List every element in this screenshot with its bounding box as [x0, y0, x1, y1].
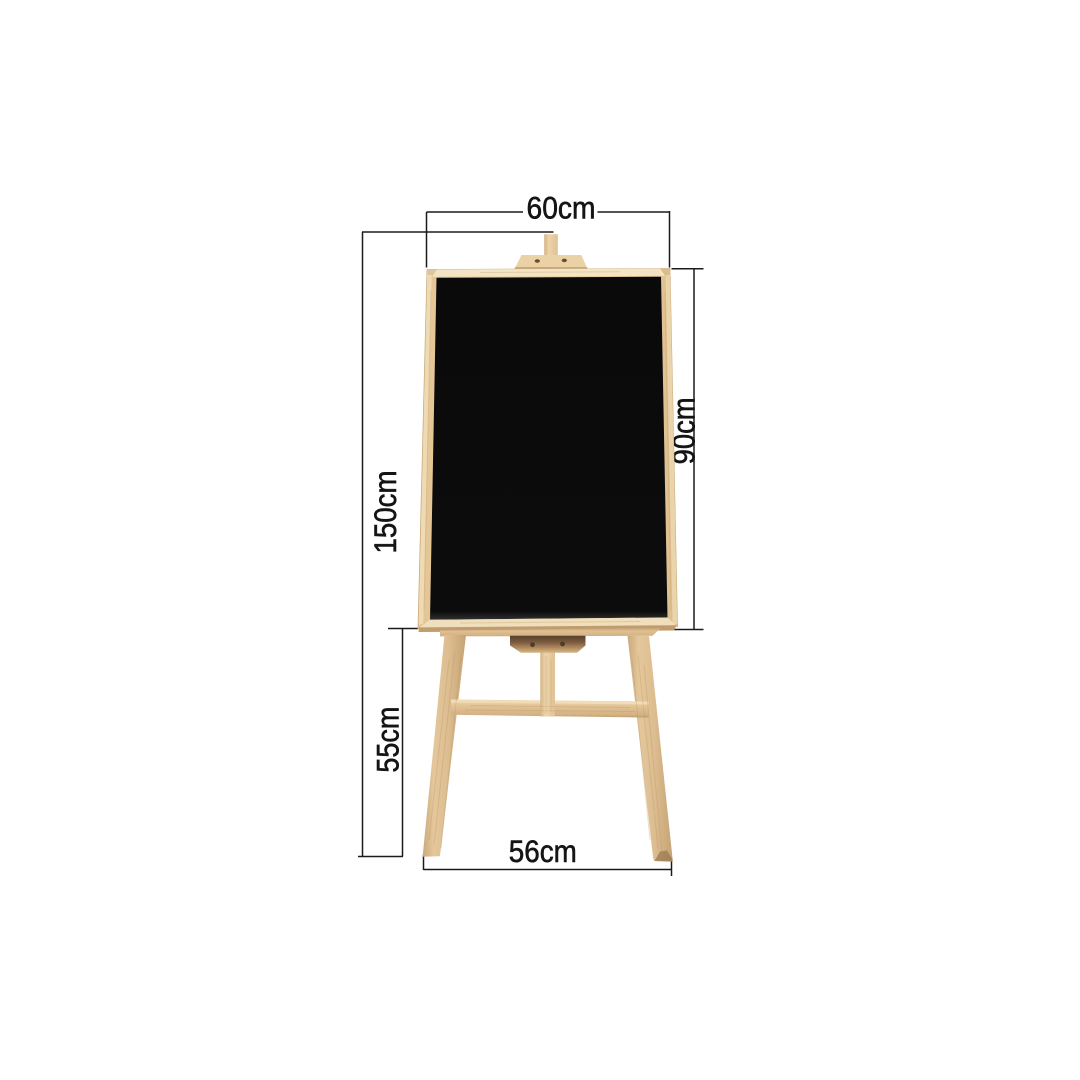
svg-text:56cm: 56cm — [509, 833, 577, 869]
svg-text:60cm: 60cm — [527, 189, 596, 225]
svg-text:55cm: 55cm — [370, 707, 406, 773]
svg-text:150cm: 150cm — [367, 471, 403, 554]
